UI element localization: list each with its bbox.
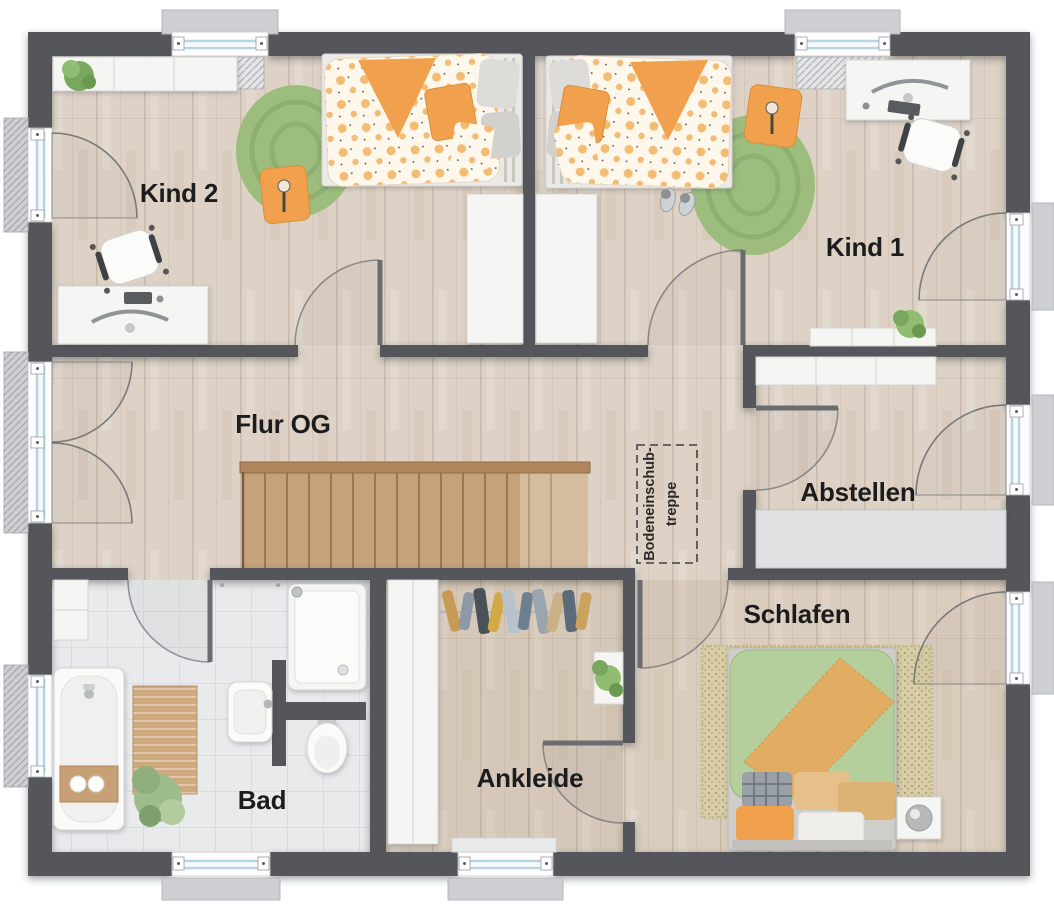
wall-ext-right	[1006, 495, 1030, 592]
window-ledge	[452, 838, 556, 852]
faucet-icon	[84, 689, 94, 699]
vanity-counter	[272, 702, 366, 720]
pillow	[742, 772, 792, 808]
wall-ext-left	[28, 32, 52, 128]
wall-ext-top	[268, 32, 795, 56]
keyboard	[124, 292, 152, 304]
floor-plan-canvas: Bodeneinschub- treppe	[0, 0, 1054, 904]
wall-ext-right	[1006, 684, 1030, 876]
desk-kind1	[846, 60, 970, 120]
wall-ext-bottom	[553, 852, 1030, 876]
attic-hatch-label-line2: treppe	[664, 482, 680, 526]
attic-hatch-label-line1: Bodeneinschub-	[642, 447, 658, 561]
wall-ext-right	[1006, 300, 1030, 405]
room-label-abstellen: Abstellen	[800, 477, 915, 507]
wall-ext-left	[28, 777, 52, 876]
window-kind1-top	[785, 10, 900, 56]
pillow	[449, 121, 495, 170]
faucet-icon	[264, 700, 273, 709]
wardrobe-kind1	[536, 194, 597, 343]
mouse	[863, 103, 870, 110]
wall-ext-left	[28, 222, 52, 362]
window-bad-left	[4, 665, 52, 787]
window-ankleide-bottom	[448, 838, 563, 900]
drain-icon	[338, 665, 348, 675]
storage-shelf-block	[756, 510, 1006, 568]
room-label-kind2: Kind 2	[140, 178, 218, 208]
wall-flur-abstellen	[743, 357, 756, 408]
wall-ext-bottom	[270, 852, 458, 876]
stair-handrail	[240, 462, 590, 473]
wall-ext-left	[28, 523, 52, 675]
doll	[766, 102, 778, 114]
wall-kind2-kind1	[523, 56, 535, 357]
towel-bar	[220, 583, 280, 587]
bathtub	[54, 668, 124, 830]
towel-roll	[88, 776, 104, 792]
wall-abstellen-schlafen	[728, 568, 1006, 580]
window-bad-bottom	[162, 852, 280, 900]
staircase	[240, 462, 590, 568]
wall-bad-ankleide	[370, 568, 386, 852]
room-label-flur-og: Flur OG	[235, 409, 330, 439]
pillow	[553, 121, 599, 170]
floor-cushion	[743, 84, 803, 149]
sink	[228, 682, 273, 742]
bed-kind2	[322, 53, 522, 187]
wall-kind2-flur	[52, 345, 298, 357]
wall-ext-right	[1006, 32, 1030, 213]
pillow	[476, 58, 521, 110]
room-label-bad: Bad	[238, 785, 287, 815]
wall-ankleide-schlafen	[623, 822, 635, 852]
shelf-row	[756, 357, 936, 385]
shower-head-icon	[292, 587, 302, 597]
wall-stair-ankleide	[210, 568, 635, 580]
floor-cushion	[259, 165, 310, 225]
wall-kind2-flur	[380, 345, 648, 357]
wall-ankleide-schlafen	[623, 580, 635, 743]
shower	[288, 584, 366, 690]
wall-flur-bad	[52, 568, 128, 580]
mouse	[157, 296, 164, 303]
pillow	[736, 806, 794, 842]
room-label-ankleide: Ankleide	[477, 763, 584, 793]
bath-caddy	[60, 766, 118, 802]
stair-fade	[520, 472, 588, 568]
nightstand	[897, 797, 941, 839]
wall-flur-abstellen	[743, 490, 756, 568]
towel-roll	[70, 776, 86, 792]
room-label-schlafen: Schlafen	[744, 599, 851, 629]
floor-plan-svg: Bodeneinschub- treppe	[0, 0, 1054, 904]
double-bed	[728, 648, 896, 850]
room-label-kind1: Kind 1	[826, 232, 904, 262]
wall-kind1-abstellen	[743, 345, 1006, 357]
desk-kind2	[58, 286, 208, 344]
window-kind2-top	[162, 10, 278, 56]
lamp-icon	[906, 805, 932, 831]
wardrobe-kind2	[467, 194, 523, 343]
sideboard-ankleide	[592, 652, 623, 704]
bed-kind1	[546, 55, 732, 189]
doll	[278, 180, 290, 192]
